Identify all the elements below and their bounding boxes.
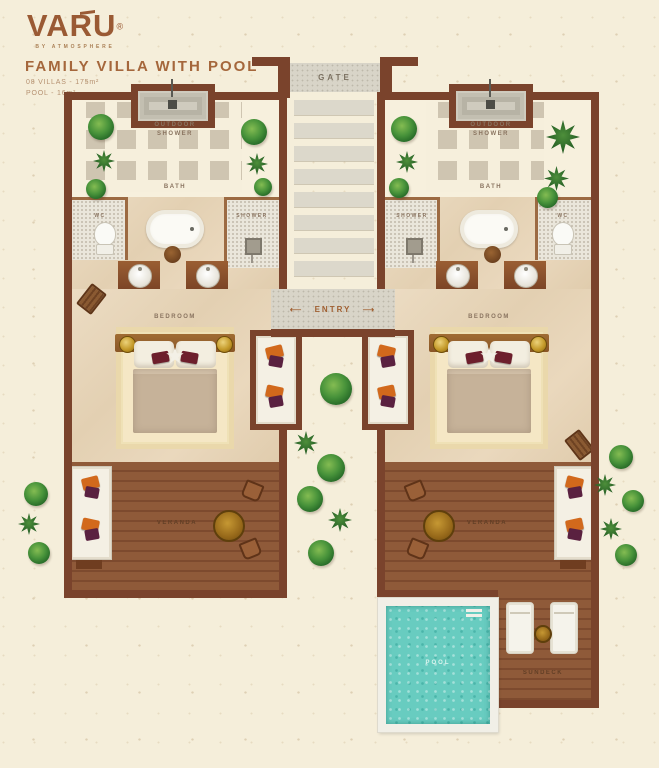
step xyxy=(294,238,374,253)
step xyxy=(294,123,374,138)
entry-label-text: ENTRY xyxy=(315,305,352,314)
shower-pipe-icon xyxy=(171,79,173,97)
bathtub-icon xyxy=(460,210,518,248)
tree-icon xyxy=(391,116,417,142)
gate-label: GATE xyxy=(290,72,380,84)
wall xyxy=(528,92,599,100)
wall xyxy=(591,598,599,708)
wall xyxy=(498,700,599,708)
cushion xyxy=(380,395,396,408)
bedroom-label: BEDROOM xyxy=(449,313,529,322)
brand-tagline: BY ATMOSPHERE xyxy=(25,44,125,50)
wall xyxy=(64,92,72,598)
daybed-shelf xyxy=(76,560,102,569)
wall xyxy=(591,92,599,598)
wood-stool-icon xyxy=(484,246,501,263)
step xyxy=(294,146,374,161)
tree-icon xyxy=(537,187,558,208)
bathtub-icon xyxy=(146,210,204,248)
step xyxy=(294,261,374,276)
bed-blanket xyxy=(447,369,531,433)
toilet-icon xyxy=(552,222,574,246)
step xyxy=(294,192,374,207)
daybed xyxy=(70,466,112,560)
cushion xyxy=(84,486,100,499)
washbasin-icon xyxy=(446,264,470,288)
veranda-label: VERANDA xyxy=(447,519,527,528)
cushion xyxy=(567,486,583,499)
wall xyxy=(211,92,287,100)
daybed-nook xyxy=(250,330,302,430)
registered-mark: ® xyxy=(116,22,123,32)
wc-label: WC xyxy=(80,213,120,220)
gate-slab: GATE xyxy=(290,63,380,92)
step xyxy=(294,100,374,115)
shower-pipe-icon xyxy=(489,79,491,97)
tree-icon xyxy=(297,486,323,512)
bath-label: BATH xyxy=(461,183,521,192)
step xyxy=(294,169,374,184)
shower-head-icon xyxy=(168,100,177,109)
tree-icon xyxy=(24,482,48,506)
shower-head-icon xyxy=(245,238,262,255)
palm-icon xyxy=(18,513,40,535)
round-table-icon xyxy=(213,510,245,542)
step xyxy=(294,215,374,230)
bed-blanket xyxy=(133,369,217,433)
palm-icon xyxy=(328,508,352,532)
tree-icon xyxy=(317,454,345,482)
spec-villas: 08 VILLAS - 175m² xyxy=(26,79,99,86)
toilet-tank-icon xyxy=(96,244,114,255)
sundeck-label: SUNDECK xyxy=(503,669,583,678)
page-title: FAMILY VILLA WITH POOL xyxy=(25,58,258,75)
wall xyxy=(271,329,395,337)
daybed-nook xyxy=(362,330,414,430)
shower-head-icon xyxy=(406,238,423,255)
wall xyxy=(377,92,451,100)
palm-icon xyxy=(294,431,318,455)
wc-label: WC xyxy=(543,213,583,220)
wall xyxy=(380,57,418,66)
cushion xyxy=(380,355,396,368)
cushion xyxy=(268,355,284,368)
pool-ladder-icon xyxy=(466,609,482,621)
sun-lounger-icon xyxy=(506,602,534,654)
pool: POOL xyxy=(386,606,490,724)
washbasin-icon xyxy=(128,264,152,288)
shower-label: SHOWER xyxy=(386,213,438,220)
washbasin-icon xyxy=(514,264,538,288)
wood-stool-icon xyxy=(164,246,181,263)
daybed-shelf xyxy=(560,560,586,569)
outdoor-shower-label: OUTDOOR SHOWER xyxy=(459,121,523,138)
brand-logo-text: VARU xyxy=(27,8,117,43)
tree-icon xyxy=(615,544,637,566)
side-table-icon xyxy=(534,625,552,643)
tree-icon xyxy=(308,540,334,566)
bath-label: BATH xyxy=(145,183,205,192)
entry-arrow-left-icon: ⟵ xyxy=(290,305,303,314)
cushion xyxy=(84,528,100,541)
shower-head-icon xyxy=(486,100,495,109)
tree-icon xyxy=(88,114,114,140)
tree-icon xyxy=(241,119,267,145)
bedside-lamp-icon xyxy=(216,336,233,353)
wall xyxy=(64,590,287,598)
wall xyxy=(377,590,498,598)
toilet-icon xyxy=(94,222,116,246)
toilet-tank-icon xyxy=(554,244,572,255)
pool-label: POOL xyxy=(386,659,490,668)
tree-icon xyxy=(622,490,644,512)
shower-label: SHOWER xyxy=(226,213,278,220)
palm-icon xyxy=(93,150,115,172)
tree-icon xyxy=(86,179,106,199)
entry-arrow-right-icon: ⟶ xyxy=(363,305,376,314)
daybed xyxy=(554,466,596,560)
cushion xyxy=(268,395,284,408)
tree-icon xyxy=(609,445,633,469)
entry-label: ⟵ ENTRY ⟶ xyxy=(271,304,395,316)
tree-icon xyxy=(320,373,352,405)
entry-hall: ⟵ ENTRY ⟶ xyxy=(271,289,395,331)
cushion xyxy=(567,528,583,541)
wall xyxy=(64,92,136,100)
palm-icon xyxy=(600,518,622,540)
sun-lounger-icon xyxy=(550,602,578,654)
tree-icon xyxy=(254,178,272,196)
washbasin-icon xyxy=(196,264,220,288)
floor-plan-page: { "brand": { "logo": "VARU", "registered… xyxy=(0,0,659,768)
veranda-label: VERANDA xyxy=(137,519,217,528)
bedside-lamp-icon xyxy=(530,336,547,353)
bedroom-label: BEDROOM xyxy=(135,313,215,322)
tree-icon xyxy=(389,178,409,198)
tree-icon xyxy=(28,542,50,564)
brand-logo: VARU® BY ATMOSPHERE xyxy=(25,8,125,50)
outdoor-shower-label: OUTDOOR SHOWER xyxy=(143,121,207,138)
